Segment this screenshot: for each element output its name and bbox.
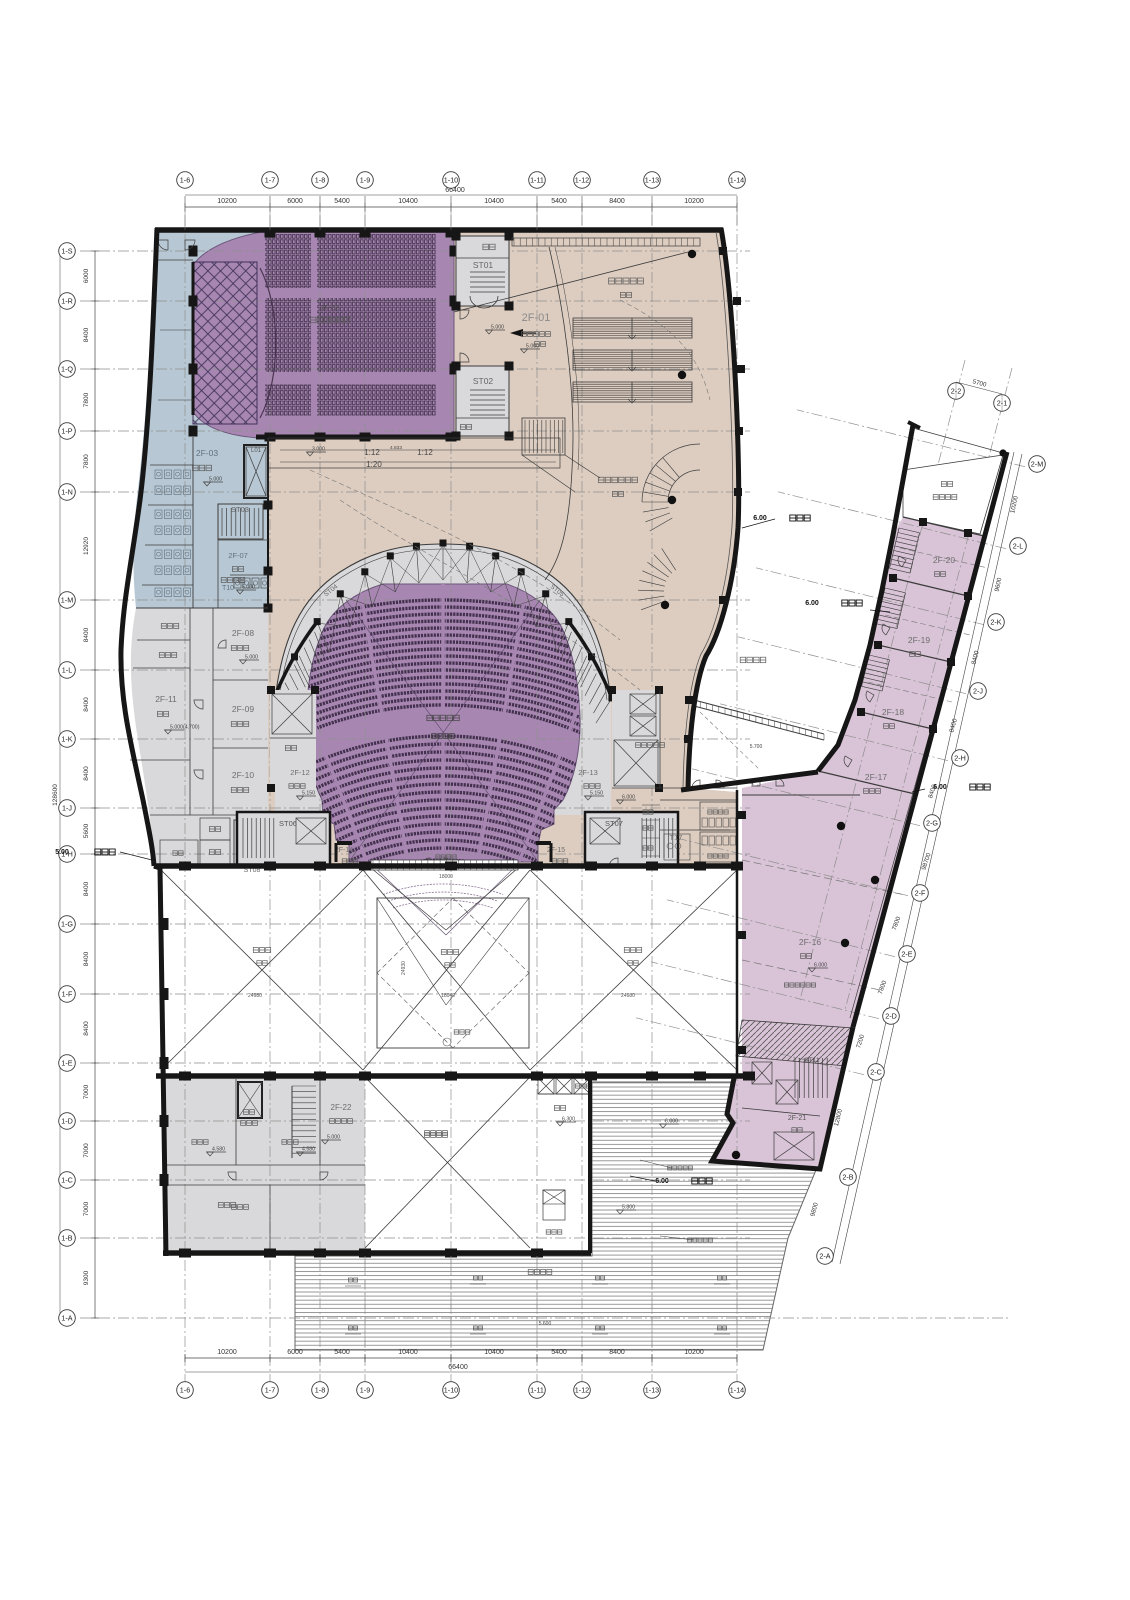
svg-text:2F-16: 2F-16	[799, 937, 821, 947]
svg-text:2-E: 2-E	[901, 950, 912, 959]
svg-text:T10: T10	[222, 585, 234, 592]
svg-text:2-A: 2-A	[819, 1252, 830, 1261]
svg-text:8400: 8400	[83, 1021, 90, 1036]
svg-text:2F-19: 2F-19	[908, 635, 930, 645]
svg-text:10200: 10200	[684, 1349, 704, 1356]
svg-text:12920: 12920	[83, 537, 90, 555]
svg-text:2-J: 2-J	[973, 687, 983, 696]
svg-text:2F-01: 2F-01	[522, 312, 551, 324]
svg-text:1-9: 1-9	[360, 176, 370, 185]
svg-text:1-N: 1-N	[61, 488, 73, 497]
svg-text:2-D: 2-D	[885, 1012, 897, 1021]
svg-text:1-Q: 1-Q	[61, 365, 73, 374]
svg-text:2F-08: 2F-08	[232, 628, 254, 638]
svg-text:5.00: 5.00	[55, 849, 69, 856]
svg-text:10400: 10400	[398, 198, 418, 205]
svg-text:3.000: 3.000	[312, 447, 325, 453]
svg-text:5.600: 5.600	[539, 1321, 552, 1327]
svg-text:4.580: 4.580	[302, 1147, 315, 1153]
svg-text:1-9: 1-9	[360, 1386, 370, 1395]
svg-text:1-E: 1-E	[61, 1059, 72, 1068]
svg-text:1-7: 1-7	[265, 1386, 275, 1395]
svg-text:10400: 10400	[484, 1349, 504, 1356]
svg-text:6000: 6000	[83, 268, 90, 283]
svg-text:2-B: 2-B	[842, 1173, 853, 1182]
svg-text:6.00: 6.00	[753, 515, 767, 522]
svg-text:2-M: 2-M	[1031, 460, 1043, 469]
svg-text:6.000: 6.000	[622, 795, 635, 801]
svg-text:5.000: 5.000	[327, 1135, 340, 1141]
svg-text:7000: 7000	[83, 1143, 90, 1158]
svg-text:5.000: 5.000	[245, 655, 258, 661]
svg-text:10400: 10400	[484, 198, 504, 205]
svg-text:8400: 8400	[609, 198, 625, 205]
svg-text:1:20: 1:20	[366, 460, 382, 469]
svg-text:L01: L01	[251, 448, 262, 454]
svg-text:1-S: 1-S	[61, 247, 72, 256]
svg-text:5600: 5600	[83, 823, 90, 838]
svg-text:1-11: 1-11	[530, 1386, 544, 1395]
svg-text:5.800: 5.800	[622, 1205, 635, 1211]
svg-text:5.000: 5.000	[491, 325, 504, 331]
svg-text:24980: 24980	[621, 993, 635, 999]
svg-text:1-C: 1-C	[61, 1176, 73, 1185]
svg-text:ST06: ST06	[279, 819, 297, 828]
svg-text:128600: 128600	[52, 784, 59, 806]
svg-text:1-14: 1-14	[730, 176, 744, 185]
svg-text:1-8: 1-8	[315, 1386, 325, 1395]
svg-text:7800: 7800	[83, 454, 90, 469]
svg-text:5.000: 5.000	[242, 585, 255, 591]
svg-text:2-G: 2-G	[926, 819, 938, 828]
svg-text:2F-03: 2F-03	[196, 448, 218, 458]
svg-text:2F-22: 2F-22	[331, 1103, 352, 1112]
svg-text:5400: 5400	[334, 1349, 350, 1356]
svg-text:ST03: ST03	[231, 505, 249, 514]
svg-text:5.150: 5.150	[302, 791, 315, 797]
svg-text:2F-14: 2F-14	[335, 847, 353, 854]
svg-text:18000: 18000	[439, 874, 453, 880]
svg-text:1-L: 1-L	[62, 666, 72, 675]
svg-text:1-13: 1-13	[645, 1386, 659, 1395]
svg-text:1-B: 1-B	[61, 1234, 72, 1243]
svg-text:8400: 8400	[83, 951, 90, 966]
svg-text:5.000: 5.000	[526, 344, 539, 350]
svg-text:1-P: 1-P	[61, 427, 72, 436]
svg-text:2F-11: 2F-11	[155, 694, 177, 704]
svg-text:1-12: 1-12	[575, 176, 589, 185]
svg-text:1-D: 1-D	[61, 1117, 73, 1126]
svg-text:ST01: ST01	[473, 260, 494, 270]
svg-text:T17: T17	[670, 833, 683, 842]
svg-text:9300: 9300	[83, 1270, 90, 1285]
svg-text:6.00: 6.00	[805, 600, 819, 607]
svg-text:1-14: 1-14	[730, 1386, 744, 1395]
svg-text:1-8: 1-8	[315, 176, 325, 185]
svg-text:1-J: 1-J	[62, 804, 72, 813]
svg-text:8400: 8400	[83, 327, 90, 342]
svg-text:10200: 10200	[684, 198, 704, 205]
svg-text:2F-10: 2F-10	[232, 770, 254, 780]
svg-text:1-13: 1-13	[645, 176, 659, 185]
svg-text:1-F: 1-F	[62, 990, 73, 999]
svg-text:8400: 8400	[609, 1349, 625, 1356]
svg-text:5.700: 5.700	[750, 744, 763, 750]
svg-text:2F-02: 2F-02	[321, 305, 339, 312]
svg-text:8400: 8400	[83, 881, 90, 896]
svg-text:5.000: 5.000	[209, 477, 222, 483]
svg-text:2F-18: 2F-18	[882, 707, 904, 717]
svg-text:5400: 5400	[551, 1349, 567, 1356]
svg-text:18040: 18040	[441, 993, 455, 999]
svg-text:2-K: 2-K	[990, 618, 1001, 627]
svg-text:1-M: 1-M	[61, 596, 73, 605]
svg-text:6.000: 6.000	[665, 1119, 678, 1125]
svg-text:4.833: 4.833	[390, 445, 402, 451]
svg-text:2F-07: 2F-07	[228, 551, 248, 560]
svg-text:4.580: 4.580	[212, 1147, 225, 1153]
svg-text:ST02: ST02	[473, 376, 494, 386]
svg-text:1-10: 1-10	[444, 176, 458, 185]
svg-text:8400: 8400	[83, 627, 90, 642]
svg-text:1:12: 1:12	[364, 448, 380, 457]
svg-text:2-F: 2-F	[915, 889, 926, 898]
svg-text:1-12: 1-12	[575, 1386, 589, 1395]
svg-text:5.150: 5.150	[590, 791, 603, 797]
svg-text:2F-09: 2F-09	[232, 704, 254, 714]
svg-text:2-H: 2-H	[954, 754, 966, 763]
svg-text:1-7: 1-7	[265, 176, 275, 185]
svg-text:10400: 10400	[398, 1349, 418, 1356]
svg-text:1-6: 1-6	[180, 1386, 190, 1395]
svg-text:1-G: 1-G	[61, 920, 73, 929]
svg-text:6.00: 6.00	[655, 1178, 669, 1185]
svg-text:8400: 8400	[83, 697, 90, 712]
svg-text:2F-21: 2F-21	[788, 1115, 806, 1122]
svg-text:ST11: ST11	[804, 1057, 819, 1064]
svg-text:6000: 6000	[287, 1349, 303, 1356]
svg-text:6.300: 6.300	[562, 1117, 575, 1123]
svg-text:10200: 10200	[217, 1349, 237, 1356]
svg-text:7000: 7000	[83, 1084, 90, 1099]
svg-text:2F-17: 2F-17	[865, 772, 887, 782]
svg-text:24980: 24980	[248, 993, 262, 999]
svg-text:1-6: 1-6	[180, 176, 190, 185]
svg-text:66400: 66400	[448, 1364, 468, 1371]
svg-text:ST07: ST07	[605, 819, 623, 828]
svg-text:2F-12: 2F-12	[290, 768, 310, 777]
svg-text:5.000(4.700): 5.000(4.700)	[170, 725, 200, 731]
svg-text:2-L: 2-L	[1013, 542, 1023, 551]
svg-text:24930: 24930	[401, 961, 407, 975]
svg-text:2F-13: 2F-13	[578, 768, 598, 777]
svg-text:1-K: 1-K	[61, 735, 72, 744]
svg-text:10200: 10200	[217, 198, 237, 205]
svg-text:1-11: 1-11	[530, 176, 544, 185]
svg-text:6.00: 6.00	[933, 784, 947, 791]
svg-text:2-C: 2-C	[870, 1068, 882, 1077]
svg-text:5400: 5400	[334, 198, 350, 205]
svg-text:8400: 8400	[83, 766, 90, 781]
svg-text:1:12: 1:12	[417, 448, 433, 457]
svg-text:6.000: 6.000	[814, 963, 827, 969]
svg-text:1-R: 1-R	[61, 297, 73, 306]
svg-text:7000: 7000	[83, 1201, 90, 1216]
svg-text:1-10: 1-10	[444, 1386, 458, 1395]
svg-text:6000: 6000	[287, 198, 303, 205]
svg-text:5400: 5400	[551, 198, 567, 205]
svg-text:1-A: 1-A	[61, 1314, 72, 1323]
svg-text:7800: 7800	[83, 392, 90, 407]
